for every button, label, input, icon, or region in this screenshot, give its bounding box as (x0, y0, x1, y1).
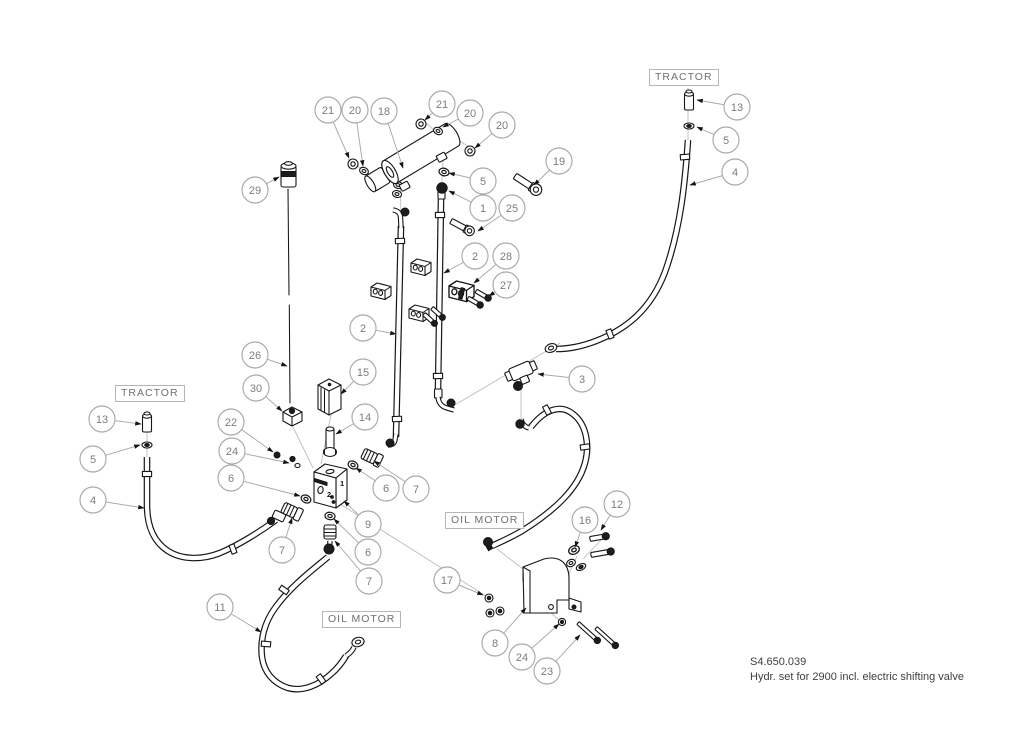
svg-text:3: 3 (579, 374, 585, 386)
callout-9[interactable]: 9 (355, 511, 381, 537)
callout-6[interactable]: 6 (355, 539, 381, 565)
callout-5[interactable]: 5 (80, 446, 106, 472)
leader-line-3 (538, 374, 569, 378)
drawing-title: Hydr. set for 2900 incl. electric shifti… (750, 670, 964, 685)
svg-text:30: 30 (250, 383, 262, 395)
callout-7[interactable]: 7 (403, 476, 429, 502)
bolt-27 (466, 295, 484, 309)
callout-7[interactable]: 7 (269, 537, 295, 563)
drawing-caption: S4.650.039 Hydr. set for 2900 incl. elec… (750, 655, 964, 684)
block-port-mark: 1 (340, 479, 344, 488)
callout-17[interactable]: 17 (434, 567, 460, 593)
callout-6[interactable]: 6 (218, 465, 244, 491)
callout-19[interactable]: 19 (546, 148, 572, 174)
callout-28[interactable]: 28 (493, 243, 519, 269)
svg-text:20: 20 (496, 120, 508, 132)
cube-30 (283, 407, 302, 426)
svg-text:17: 17 (441, 575, 453, 587)
svg-text:22: 22 (225, 417, 237, 429)
leader-line-5 (105, 445, 140, 455)
leader-line-20 (475, 133, 492, 148)
callout-21[interactable]: 21 (429, 91, 455, 117)
leader-line-22 (242, 430, 273, 452)
leader-line-2 (444, 262, 464, 273)
callout-26[interactable]: 26 (242, 342, 268, 368)
leader-line-6 (356, 468, 375, 481)
callout-22[interactable]: 22 (218, 409, 244, 435)
svg-text:8: 8 (492, 638, 498, 650)
callout-5[interactable]: 5 (470, 168, 496, 194)
callout-27[interactable]: 27 (493, 272, 519, 298)
callout-7[interactable]: 7 (356, 568, 382, 594)
t-fitting-3 (504, 359, 541, 391)
exploded-view-drawing: 2120182120201951251354228272292630151431… (0, 0, 1024, 730)
leader-line-4 (690, 176, 723, 185)
washer-24-bottom (558, 618, 565, 625)
svg-text:12: 12 (611, 499, 623, 511)
leader-line-20 (357, 123, 363, 166)
callout-16[interactable]: 16 (572, 507, 598, 533)
drawing-number: S4.650.039 (750, 655, 964, 670)
callout-14[interactable]: 14 (352, 404, 378, 430)
block-port-mark: 2 (327, 490, 331, 499)
leader-line-11 (231, 614, 261, 632)
svg-text:13: 13 (96, 414, 108, 426)
callout-18[interactable]: 18 (371, 98, 397, 124)
callout-20[interactable]: 20 (457, 100, 483, 126)
callout-2[interactable]: 2 (462, 243, 488, 269)
svg-text:27: 27 (500, 280, 512, 292)
fitting-7-bottom (324, 525, 336, 539)
callout-24[interactable]: 24 (509, 644, 535, 670)
callout-29[interactable]: 29 (242, 177, 268, 203)
solenoid-15 (318, 379, 341, 415)
svg-text:2: 2 (472, 251, 478, 263)
leader-line-16 (575, 532, 580, 547)
svg-text:7: 7 (366, 576, 372, 588)
leader-line-23 (556, 635, 580, 661)
svg-text:23: 23 (541, 666, 553, 678)
leader-line-29 (266, 177, 279, 184)
leader-line-12 (601, 515, 610, 530)
nut-17 (485, 594, 493, 602)
leader-line-13 (697, 100, 724, 105)
ball-22 (274, 452, 280, 458)
oil-motor-left-label: OIL MOTOR (322, 611, 401, 628)
nut-21-top (416, 119, 426, 129)
fitting-1 (437, 183, 447, 199)
leader-line-4 (106, 502, 144, 508)
elbow-bottom (324, 541, 334, 554)
washer-5-center (438, 167, 450, 177)
svg-text:16: 16 (579, 515, 591, 527)
oil-motor-right-label: OIL MOTOR (445, 512, 524, 529)
washer-16 (567, 544, 580, 556)
tractor-left-label: TRACTOR (115, 385, 185, 402)
washer-5-left (142, 442, 152, 448)
svg-text:6: 6 (383, 483, 389, 495)
callout-15[interactable]: 15 (350, 359, 376, 385)
plug-13-right (685, 90, 694, 110)
leader-line-14 (336, 424, 354, 434)
nut-24-small (290, 456, 295, 461)
callout-8[interactable]: 8 (482, 630, 508, 656)
svg-text:6: 6 (365, 547, 371, 559)
pipe-clamp (411, 259, 431, 276)
leader-line-7 (286, 518, 292, 538)
parts-diagram: 2120182120201951251354228272292630151431… (0, 0, 1024, 730)
callout-11[interactable]: 11 (207, 594, 233, 620)
bolt-25 (449, 217, 476, 238)
leader-line-24 (245, 454, 289, 463)
svg-text:15: 15 (357, 367, 369, 379)
tractor-right-label: TRACTOR (649, 69, 719, 86)
leader-line-24 (532, 624, 559, 648)
svg-text:4: 4 (90, 495, 96, 507)
callout-5[interactable]: 5 (713, 127, 739, 153)
leader-line-6 (244, 481, 300, 496)
callout-4[interactable]: 4 (722, 159, 748, 185)
callout-20[interactable]: 20 (489, 112, 515, 138)
svg-text:14: 14 (359, 412, 371, 424)
svg-text:11: 11 (214, 602, 225, 614)
svg-text:28: 28 (500, 251, 512, 263)
callout-20[interactable]: 20 (342, 97, 368, 123)
leader-line-27 (489, 292, 495, 296)
cap-29 (281, 162, 296, 187)
leader-line-21 (333, 122, 349, 158)
svg-text:24: 24 (516, 652, 528, 664)
fitting-14 (324, 427, 337, 457)
leader-line-5 (697, 127, 714, 135)
wire-26 (288, 189, 290, 403)
callout-2[interactable]: 2 (350, 315, 376, 341)
svg-text:21: 21 (322, 105, 334, 117)
washer-5-right (684, 123, 694, 129)
leader-line-8 (504, 608, 526, 633)
svg-text:5: 5 (723, 135, 729, 147)
svg-text:5: 5 (480, 176, 486, 188)
callout-12[interactable]: 12 (604, 491, 630, 517)
plug-13-left (143, 412, 152, 432)
svg-text:6: 6 (228, 473, 234, 485)
svg-text:7: 7 (413, 484, 419, 496)
nut-17 (486, 609, 494, 617)
hose-2-right (433, 199, 455, 410)
svg-text:26: 26 (249, 350, 261, 362)
leader-line-21 (425, 113, 433, 120)
hose-2-left (386, 181, 409, 447)
washer-6-bottom (324, 512, 335, 521)
pipe-clamp (371, 283, 391, 300)
leader-line-1 (449, 191, 471, 202)
leader-line-13 (115, 421, 141, 424)
svg-text:25: 25 (506, 203, 518, 215)
svg-text:4: 4 (732, 167, 738, 179)
callout-leader-lines (105, 100, 724, 661)
nut-17 (496, 607, 504, 615)
svg-text:20: 20 (349, 105, 361, 117)
leader-line-19 (534, 170, 550, 185)
washer-16 (575, 562, 587, 572)
svg-text:7: 7 (279, 545, 285, 557)
svg-text:20: 20 (464, 108, 476, 120)
washer-16 (565, 558, 576, 568)
leader-line-30 (266, 397, 282, 411)
nut-20-right (465, 146, 475, 156)
callout-3[interactable]: 3 (569, 366, 595, 392)
callout-1[interactable]: 1 (470, 195, 496, 221)
svg-text:24: 24 (226, 446, 238, 458)
callout-24[interactable]: 24 (219, 438, 245, 464)
leader-line-26 (267, 359, 287, 366)
nut-21-left (348, 159, 358, 169)
leader-line-5 (449, 173, 470, 178)
bolt-19 (512, 171, 544, 198)
callout-4[interactable]: 4 (80, 487, 106, 513)
fitting-7-right (360, 447, 384, 467)
washer-24-small (295, 464, 300, 468)
bolt-12 (590, 547, 614, 558)
svg-text:13: 13 (731, 102, 743, 114)
callout-23[interactable]: 23 (534, 658, 560, 684)
callout-30[interactable]: 30 (243, 375, 269, 401)
callout-21[interactable]: 21 (315, 97, 341, 123)
svg-text:29: 29 (249, 185, 261, 197)
svg-text:5: 5 (90, 454, 96, 466)
callout-6[interactable]: 6 (373, 475, 399, 501)
svg-text:19: 19 (553, 156, 565, 168)
svg-text:9: 9 (365, 519, 371, 531)
leader-line-2 (376, 330, 396, 334)
callout-25[interactable]: 25 (499, 195, 525, 221)
callout-13[interactable]: 13 (724, 94, 750, 120)
svg-text:1: 1 (480, 203, 486, 215)
cylinder-18 (361, 121, 463, 197)
svg-text:18: 18 (378, 106, 390, 118)
hose-4-left (142, 457, 286, 558)
svg-text:2: 2 (360, 323, 366, 335)
leader-line-15 (341, 381, 354, 394)
washer-6-left (300, 493, 312, 504)
svg-text:21: 21 (436, 99, 448, 111)
callout-13[interactable]: 13 (89, 406, 115, 432)
